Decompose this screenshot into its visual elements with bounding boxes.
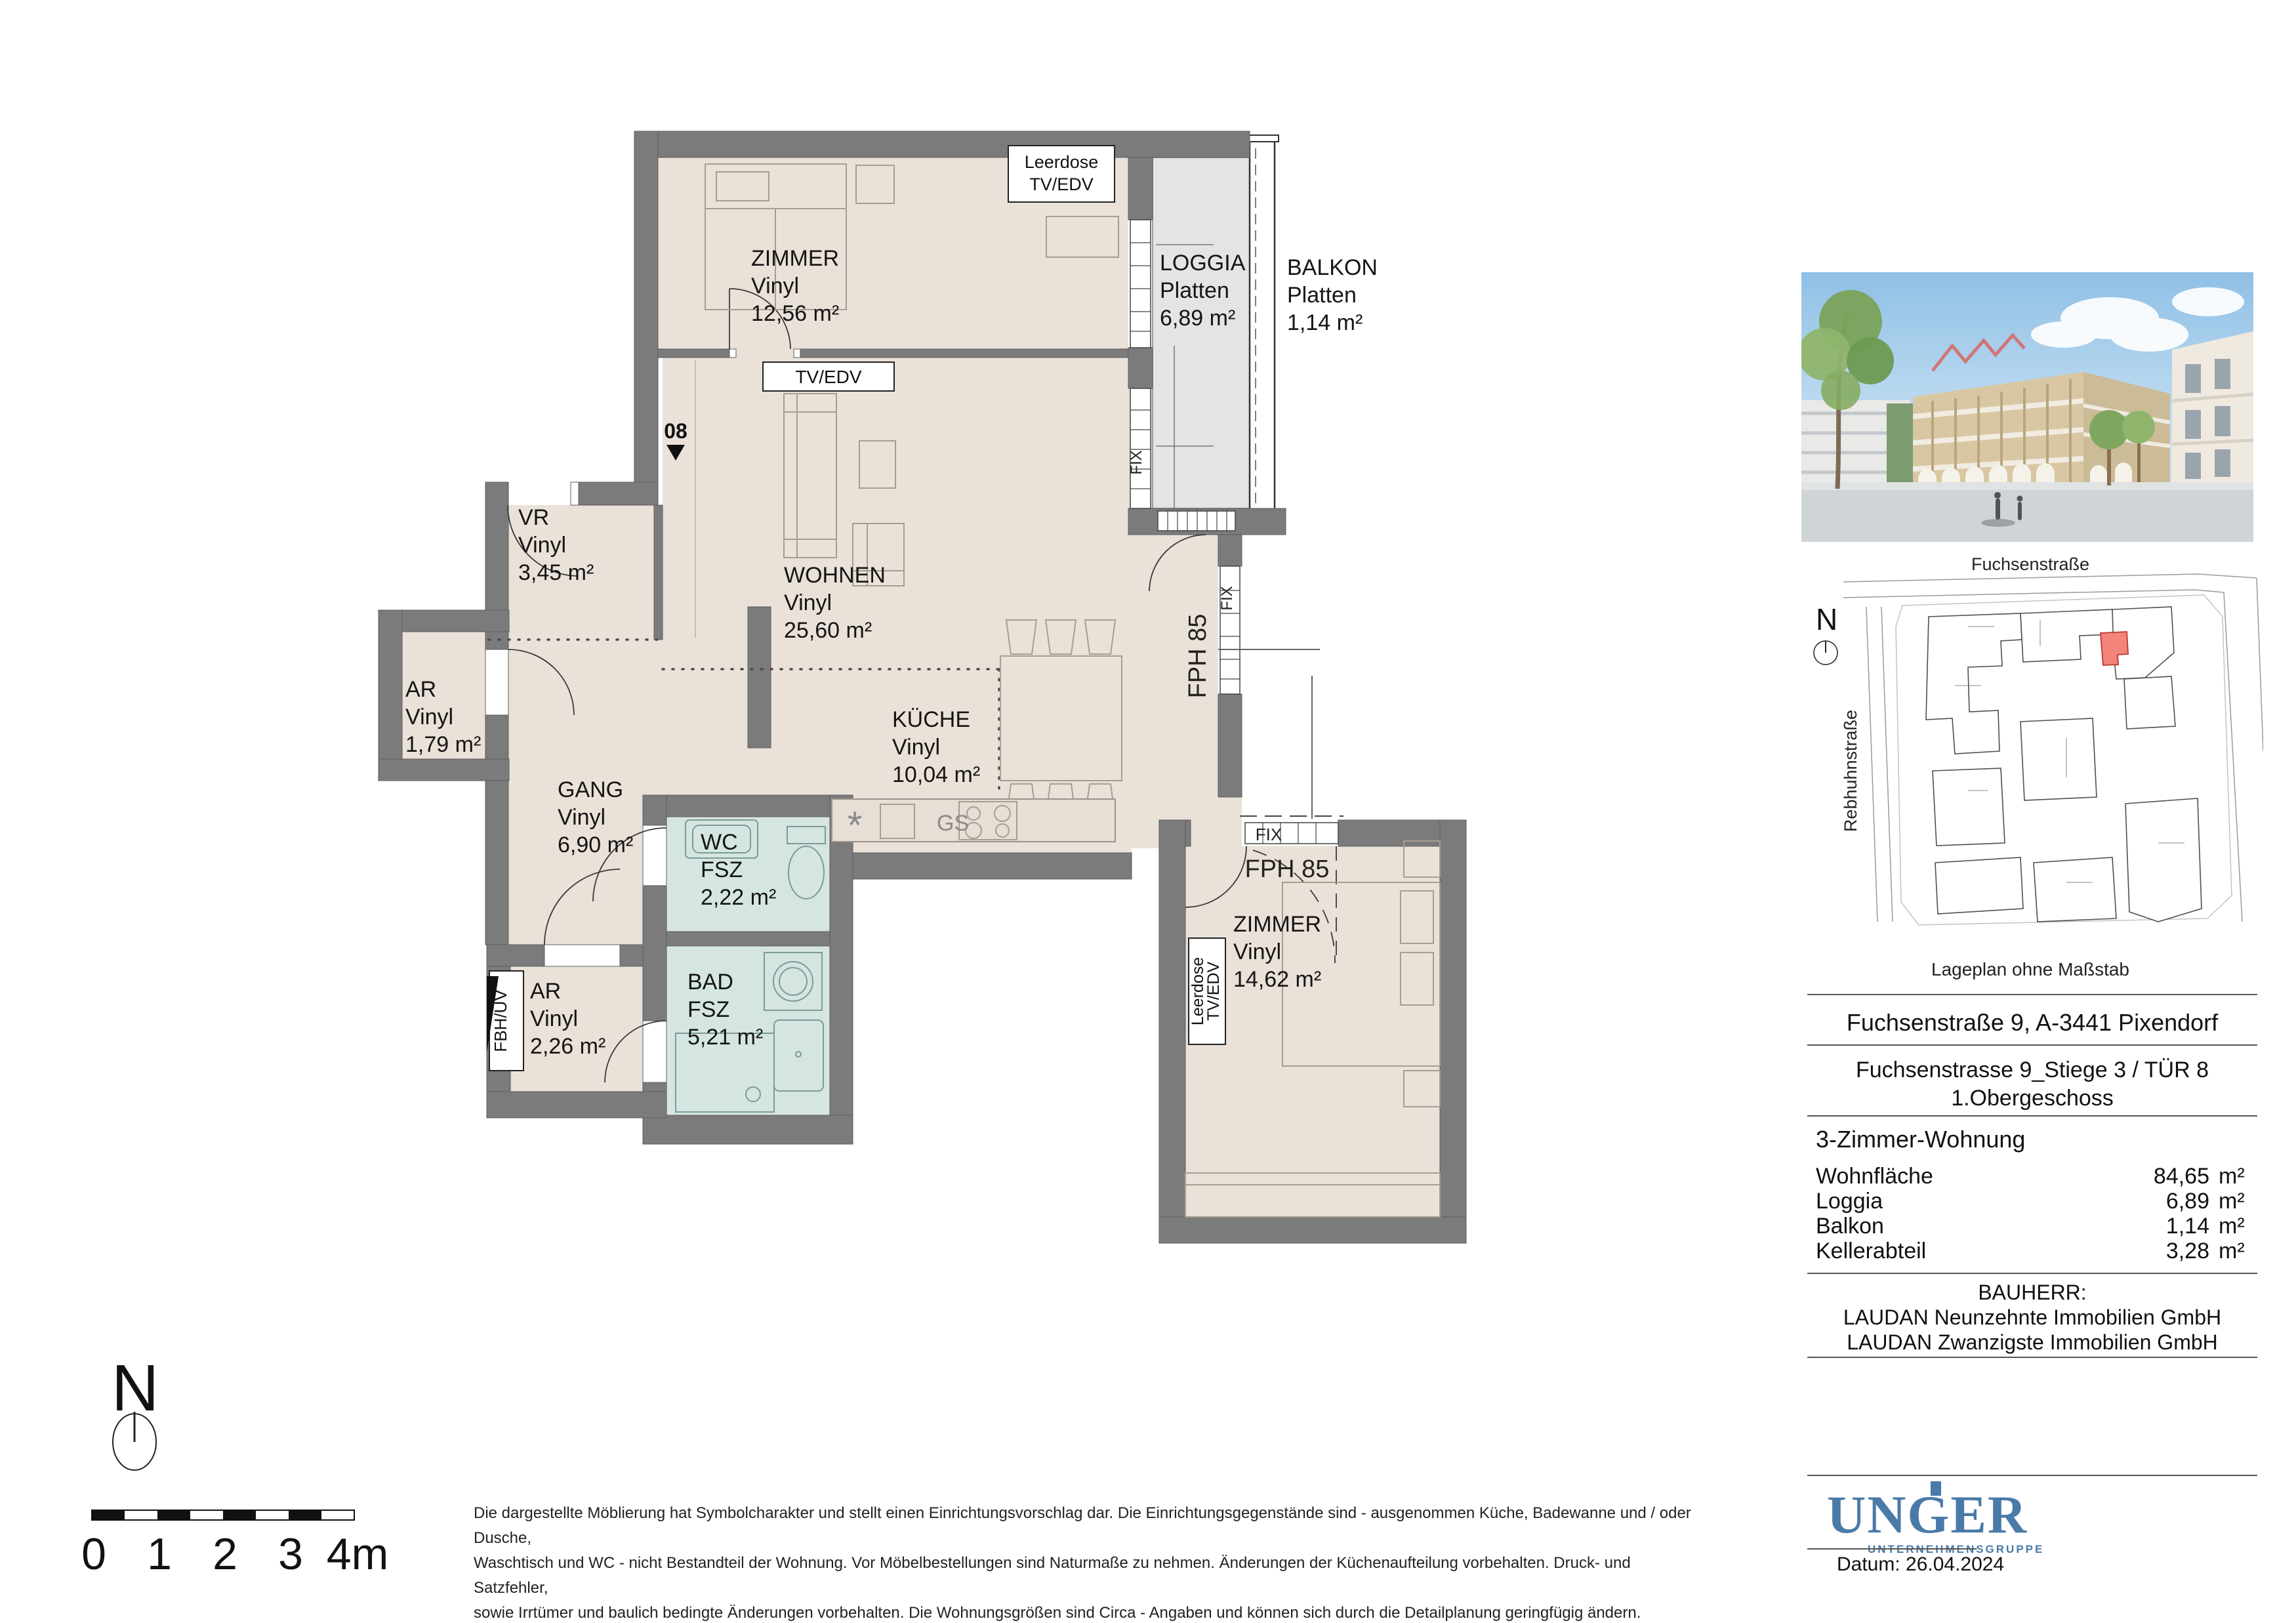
street-label-left: Rebhuhnstraße	[1841, 710, 1860, 832]
svg-text:Vinyl: Vinyl	[892, 735, 940, 760]
svg-text:3,45 m²: 3,45 m²	[518, 560, 594, 585]
date-line: Datum: 26.04.2024	[1837, 1553, 2004, 1576]
svg-text:Vinyl: Vinyl	[751, 274, 799, 298]
disclaimer-text: Die dargestellte Möblierung hat Symbolch…	[474, 1501, 1694, 1623]
apartment-type: 3-Zimmer-Wohnung	[1816, 1126, 2025, 1153]
sidewalk	[1801, 482, 2253, 490]
unger-logo: UNGER UNTERNEHMENSGRUPPE	[1827, 1481, 2044, 1556]
unit-number: 08	[664, 419, 687, 443]
fph85-label-zimmer2: FPH 85	[1245, 855, 1330, 883]
svg-text:2,22 m²: 2,22 m²	[701, 885, 776, 910]
svg-text:5,21 m²: 5,21 m²	[687, 1025, 763, 1050]
wc-floor	[666, 817, 830, 932]
svg-text:Vinyl: Vinyl	[558, 805, 605, 830]
separator	[1807, 994, 2257, 995]
svg-text:BALKON: BALKON	[1287, 255, 1378, 280]
scale-bar: 0 1 2 3 4m	[81, 1510, 388, 1579]
disclaimer-line: sowie Irrtümer und baulich bedingte Ände…	[474, 1601, 1694, 1623]
svg-text:6,89 m²: 6,89 m²	[1160, 306, 1235, 331]
fph85-label-right: FPH 85	[1184, 614, 1212, 699]
building-render-photo	[1801, 272, 2253, 542]
unit-line-2: 1.Obergeschoss	[1807, 1086, 2257, 1111]
area-label: Balkon	[1816, 1214, 1884, 1239]
area-value: 1,14	[1884, 1214, 2219, 1239]
svg-text:10,04 m²: 10,04 m²	[892, 762, 980, 787]
svg-text:FSZ: FSZ	[687, 997, 729, 1022]
separator	[1807, 1357, 2257, 1358]
svg-text:12,56 m²: 12,56 m²	[751, 301, 839, 326]
svg-text:3: 3	[278, 1529, 303, 1579]
svg-text:4m: 4m	[327, 1529, 388, 1579]
svg-text:2: 2	[213, 1529, 237, 1579]
svg-text:Vinyl: Vinyl	[530, 1006, 578, 1031]
leerdose-box-1-line1: Leerdose	[1025, 152, 1099, 172]
site-plan-caption: Lageplan ohne Maßstab	[1804, 959, 2257, 980]
separator	[1807, 1475, 2257, 1476]
separator	[1807, 1273, 2257, 1274]
leerdose-box-1-line2: TV/EDV	[1029, 175, 1094, 194]
unit-line-1: Fuchsenstrasse 9_Stiege 3 / TÜR 8	[1807, 1058, 2257, 1083]
svg-text:ZIMMER: ZIMMER	[751, 246, 839, 271]
separator	[1807, 1115, 2257, 1117]
svg-text:25,60 m²: 25,60 m²	[784, 618, 872, 643]
green-facade	[1887, 403, 1913, 482]
right-building	[2172, 331, 2253, 492]
area-row: Kellerabteil 3,28 m²	[1816, 1239, 2257, 1264]
sink-symbol: *	[848, 804, 863, 847]
area-label: Kellerabteil	[1816, 1239, 1926, 1264]
svg-text:BAD: BAD	[687, 970, 733, 995]
label-balkon: BALKON Platten 1,14 m²	[1287, 255, 1378, 335]
site-plan: Fuchsenstraße Rebhuhnstraße N	[1804, 554, 2263, 958]
loggia-floor	[1153, 157, 1250, 508]
svg-text:ZIMMER: ZIMMER	[1233, 912, 1321, 937]
area-row: Loggia 6,89 m²	[1816, 1189, 2257, 1214]
kitchen-counter	[832, 799, 1115, 842]
area-unit: m²	[2219, 1189, 2257, 1214]
disclaimer-line: Die dargestellte Möblierung hat Symbolch…	[474, 1501, 1694, 1551]
road	[1801, 482, 2253, 542]
svg-text:Vinyl: Vinyl	[784, 590, 832, 615]
svg-text:GANG: GANG	[558, 777, 623, 802]
svg-text:AR: AR	[530, 979, 561, 1004]
area-label: Loggia	[1816, 1189, 1883, 1214]
svg-text:FSZ: FSZ	[701, 857, 743, 882]
site-compass: N	[1814, 602, 1837, 665]
svg-text:6,90 m²: 6,90 m²	[558, 832, 633, 857]
gang-floor-upper	[508, 640, 663, 797]
bauherr-line-1: LAUDAN Neunzehnte Immobilien GmbH	[1807, 1305, 2257, 1330]
svg-text:Vinyl: Vinyl	[518, 533, 566, 558]
fix-label-zimmer2: FIX	[1256, 825, 1282, 844]
separator	[1807, 1548, 1977, 1550]
site-buildings	[1926, 607, 2202, 922]
leerdose-box-2-line2: TV/EDV	[1204, 962, 1223, 1021]
area-row: Wohnfläche 84,65 m²	[1816, 1164, 2257, 1189]
area-value: 6,89	[1883, 1189, 2219, 1214]
area-unit: m²	[2219, 1214, 2257, 1239]
area-unit: m²	[2219, 1164, 2257, 1189]
scale-labels: 0 1 2 3 4m	[81, 1529, 388, 1579]
north-compass: N	[112, 1351, 159, 1470]
site-north-letter: N	[1816, 602, 1837, 636]
svg-text:WC: WC	[701, 830, 738, 855]
logo-name: UNGER	[1827, 1488, 2044, 1542]
svg-text:1: 1	[147, 1529, 172, 1579]
svg-text:0: 0	[81, 1529, 106, 1579]
fix-label-loggia: FIX	[1128, 450, 1145, 474]
tvedv-box: TV/EDV	[795, 367, 861, 387]
svg-text:1,14 m²: 1,14 m²	[1287, 310, 1363, 335]
floor-plan: Leerdose TV/EDV TV/EDV Leerdose TV/EDV F…	[0, 0, 1797, 1623]
area-value: 3,28	[1926, 1239, 2219, 1264]
bauherr-line-2: LAUDAN Zwanzigste Immobilien GmbH	[1807, 1330, 2257, 1355]
address-line: Fuchsenstraße 9, A-3441 Pixendorf	[1807, 1009, 2257, 1037]
svg-text:Vinyl: Vinyl	[1233, 939, 1281, 964]
logo-square-icon	[1931, 1481, 1941, 1496]
svg-text:VR: VR	[518, 505, 549, 530]
disclaimer-line: Waschtisch und WC - nicht Bestandteil de…	[474, 1551, 1694, 1601]
svg-text:LOGGIA: LOGGIA	[1160, 251, 1246, 276]
svg-text:AR: AR	[405, 677, 436, 702]
svg-text:Vinyl: Vinyl	[405, 705, 453, 729]
svg-text:Platten: Platten	[1287, 283, 1357, 308]
svg-text:2,26 m²: 2,26 m²	[530, 1034, 605, 1059]
svg-text:KÜCHE: KÜCHE	[892, 707, 970, 732]
area-label: Wohnfläche	[1816, 1164, 1933, 1189]
gs-label: GS	[937, 811, 969, 836]
svg-text:WOHNEN: WOHNEN	[784, 563, 886, 588]
area-row: Balkon 1,14 m²	[1816, 1214, 2257, 1239]
street-label-top: Fuchsenstraße	[1971, 554, 2089, 574]
separator	[1807, 1044, 2257, 1046]
fix-label-right: FIX	[1218, 586, 1236, 610]
svg-text:Platten: Platten	[1160, 278, 1229, 303]
svg-text:1,79 m²: 1,79 m²	[405, 732, 481, 757]
bauherr-label: BAUHERR:	[1807, 1281, 2257, 1305]
area-value: 84,65	[1933, 1164, 2219, 1189]
area-unit: m²	[2219, 1239, 2257, 1264]
svg-text:14,62 m²: 14,62 m²	[1233, 967, 1321, 992]
balkon-structure	[1246, 135, 1279, 521]
